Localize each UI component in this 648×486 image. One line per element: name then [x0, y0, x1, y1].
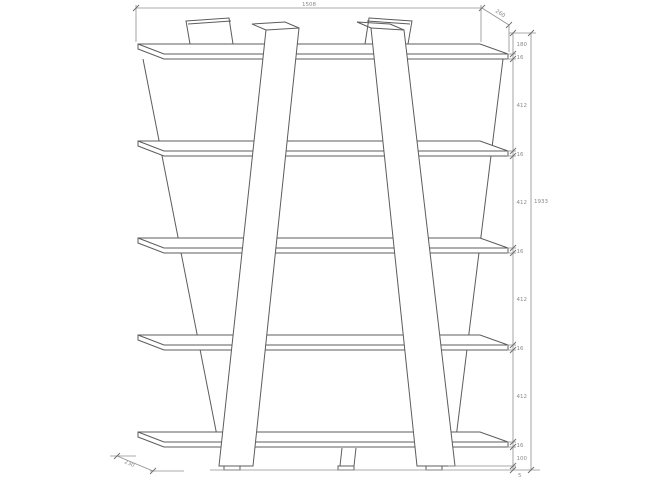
- chain-label-3: 16: [517, 152, 524, 158]
- left-foot: [224, 466, 240, 470]
- top-depth-label: 260: [494, 9, 507, 20]
- center-support: [340, 448, 356, 466]
- shelves: [138, 44, 508, 447]
- chain-label-6: 412: [517, 297, 528, 303]
- chain-label-2: 412: [517, 103, 528, 109]
- chain-label-10: 100: [517, 456, 528, 462]
- chain-label-7: 16: [517, 346, 524, 352]
- chain-label-9: 16: [517, 443, 524, 449]
- chain-label-11: 5: [518, 473, 522, 479]
- chain-label-4: 412: [517, 200, 528, 206]
- overall-height-label: 1933: [534, 199, 548, 205]
- right-foot: [426, 466, 442, 470]
- top-width-label: 1508: [302, 2, 316, 8]
- left-upstand: [186, 18, 233, 44]
- shelf-2: [138, 141, 508, 156]
- shelf-1: [138, 44, 508, 59]
- shelf-4: [138, 335, 508, 350]
- chain-label-8: 412: [517, 394, 528, 400]
- shelf-3: [138, 238, 508, 253]
- chain-label-0: 180: [517, 42, 528, 48]
- feet-pads: [224, 466, 442, 470]
- chain-label-5: 16: [517, 249, 524, 255]
- bookcase-technical-drawing: 1508 260 230 1933 180 16 412 16 412 16 4…: [0, 0, 648, 486]
- center-foot: [338, 466, 354, 470]
- drawing-canvas: 1508 260 230 1933 180 16 412 16 412 16 4…: [0, 0, 648, 486]
- chain-label-1: 16: [517, 55, 524, 61]
- bottom-depth-label: 230: [123, 459, 135, 469]
